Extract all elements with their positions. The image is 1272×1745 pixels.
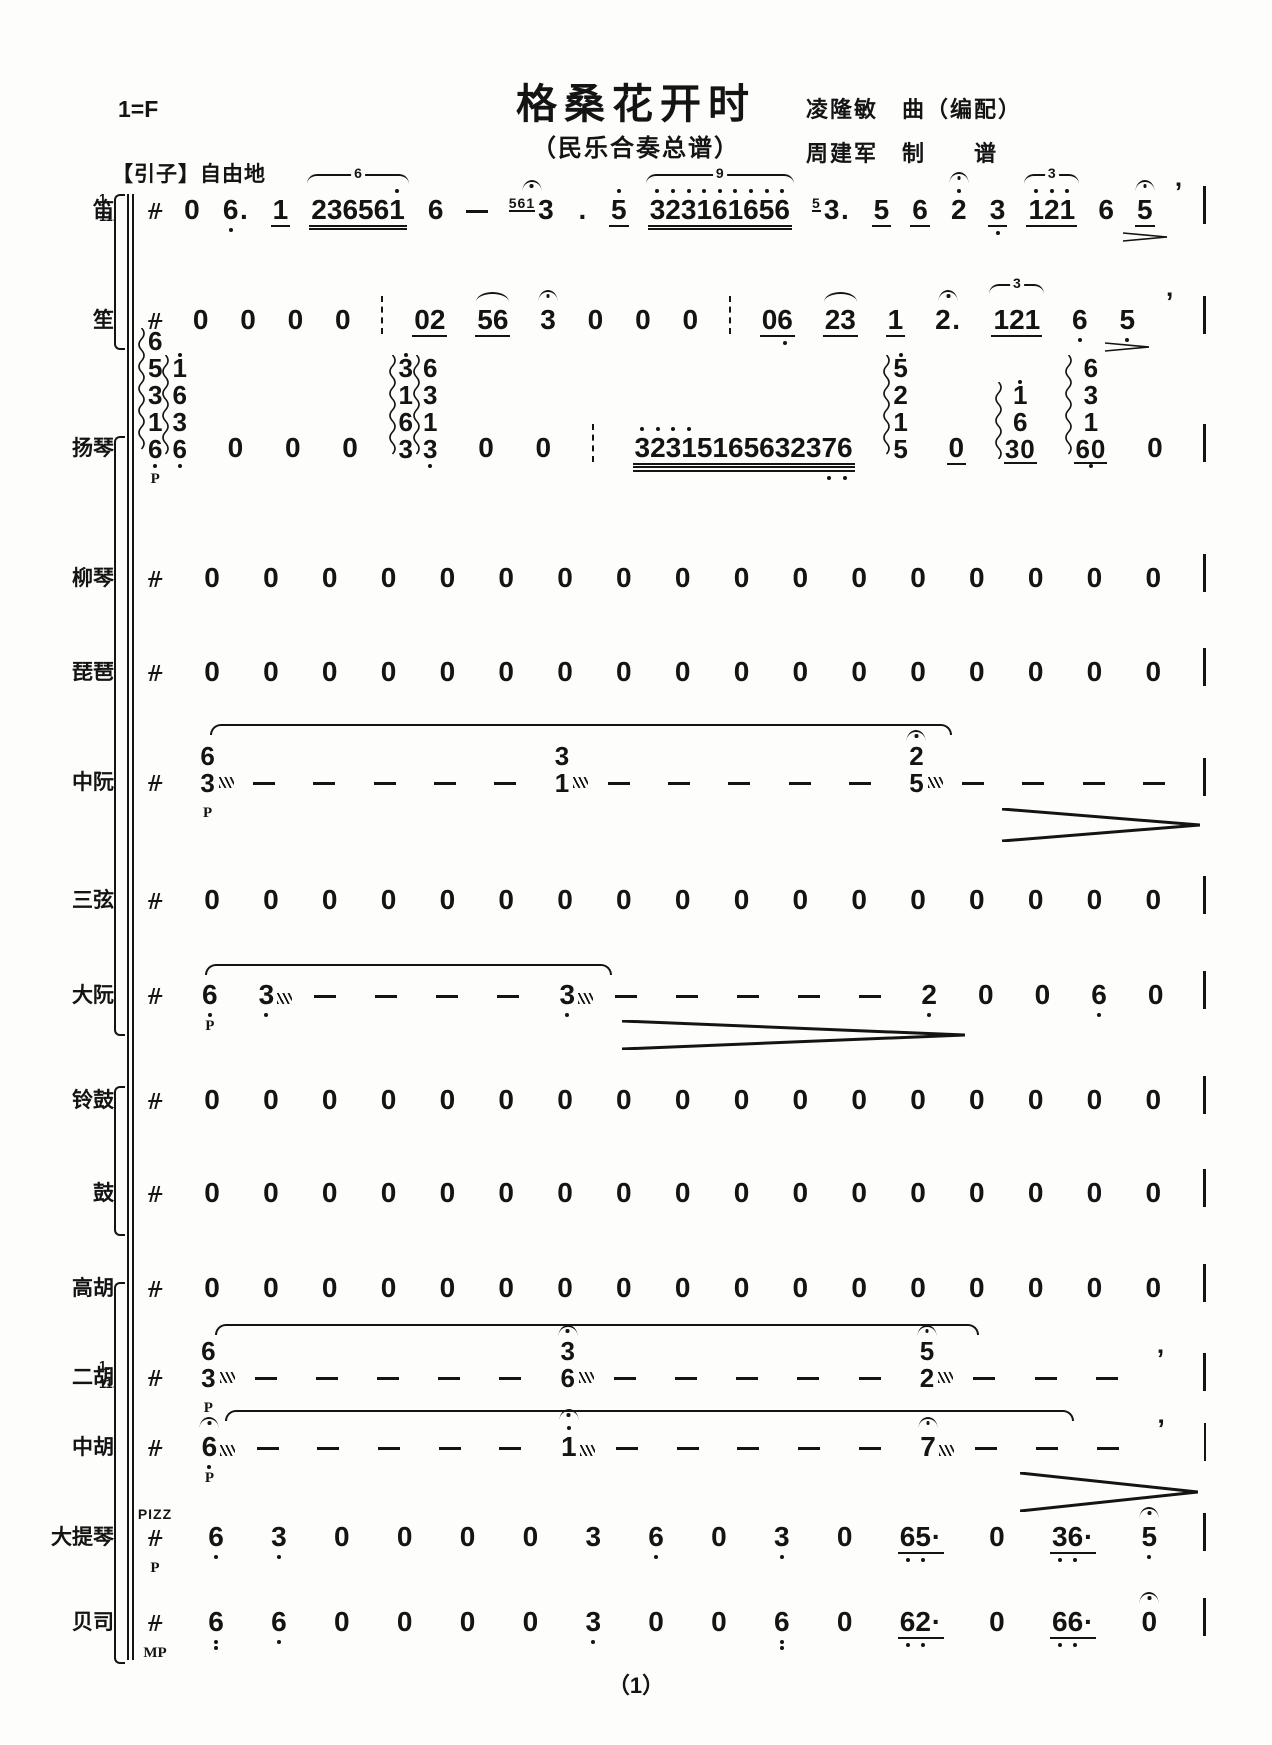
note-text: 0	[674, 1274, 692, 1302]
note-digit: 1	[399, 382, 413, 408]
chord-stack: 36	[560, 1337, 574, 1391]
note-digit: 0	[1028, 1086, 1044, 1114]
note-token: 5613	[509, 196, 555, 224]
rest-token: 0	[1086, 1274, 1104, 1302]
free-meter-symbol	[148, 988, 162, 1009]
note-text: 0	[535, 434, 553, 462]
free-meter-icon	[146, 1440, 164, 1458]
note-digit: 0	[969, 1086, 985, 1114]
chord-stack: 65316	[148, 327, 162, 462]
note-digit: 3	[1052, 1523, 1068, 1551]
page-title: 格桑花开时	[0, 70, 1272, 130]
rest-token: 0	[733, 658, 751, 686]
group-bracket-1	[114, 194, 125, 350]
rest-token: 0	[262, 1274, 280, 1302]
sustain-dash	[466, 210, 488, 225]
note-digit: 3	[172, 409, 186, 435]
note-digit: 0	[851, 1274, 867, 1302]
note-digit: 3	[585, 1523, 601, 1551]
note-digit: 6	[648, 1523, 664, 1551]
note-text: 0	[909, 1274, 927, 1302]
credit-copyist: 周建军 制 谱	[806, 136, 998, 168]
barline	[1203, 424, 1206, 462]
note-text: 6	[201, 981, 219, 1009]
note-text: 0	[380, 1086, 398, 1114]
note-body: 0	[459, 1608, 477, 1636]
note-text: 0	[203, 886, 221, 914]
note-body: 36·	[1051, 1523, 1095, 1551]
note-body: 0	[1086, 1274, 1104, 1302]
note-body: 0	[262, 886, 280, 914]
note-digit: 0	[675, 564, 691, 592]
note-body: 3	[989, 196, 1007, 224]
note-text: 65·	[899, 1523, 943, 1551]
rest-token: 0	[556, 886, 574, 914]
note-text: 62·	[899, 1608, 943, 1636]
dash-line	[797, 1377, 819, 1381]
part-number: 1.	[99, 191, 110, 206]
rest-token: 0	[1145, 1086, 1163, 1114]
note-token: 5	[1136, 196, 1154, 224]
rest-token: 0	[321, 1179, 339, 1207]
note-token: 3	[258, 981, 276, 1009]
note-digit: 0	[1146, 658, 1162, 686]
chord-note: 3	[399, 354, 413, 381]
chord-token: 6313	[423, 354, 437, 462]
dash-line	[439, 1447, 461, 1451]
note-digit: 3	[774, 1523, 790, 1551]
note-text: 32315165632376	[634, 434, 854, 462]
fermata-icon	[200, 1417, 219, 1426]
note-digit: 6	[208, 1608, 224, 1636]
note-digit: ·	[931, 1523, 942, 1551]
note-text: 0	[522, 1608, 540, 1636]
free-meter-icon	[146, 893, 164, 911]
note-digit: 2	[893, 382, 907, 408]
note-digit: 0	[793, 1179, 809, 1207]
group-bracket-2	[114, 436, 125, 1036]
sustain-dash	[438, 1377, 460, 1392]
rest-token: 0	[988, 1523, 1006, 1551]
note-token: 5	[1140, 1523, 1158, 1551]
rest-token: 0	[909, 564, 927, 592]
note-digit: ·	[931, 1608, 942, 1636]
note-digit: 0	[851, 886, 867, 914]
note-body: 0	[968, 1086, 986, 1114]
sustain-dash	[789, 782, 811, 797]
arpeggio-icon	[882, 355, 891, 464]
note-text: 0	[988, 1523, 1006, 1551]
rest-token: 0	[792, 1274, 810, 1302]
note-digit: 0	[460, 1608, 476, 1636]
rest-token: 0	[733, 886, 751, 914]
note-digit: 0	[734, 1274, 750, 1302]
note-digit: 0	[342, 434, 358, 462]
note-body: 53.	[812, 196, 851, 224]
note-body: 0	[1147, 981, 1165, 1009]
decrescendo-hairpin-3	[1020, 1472, 1198, 1517]
rest-token: 0	[556, 658, 574, 686]
note-digit: ·	[1083, 1523, 1094, 1551]
note-digit: 0	[635, 306, 651, 334]
group-bracket-4	[114, 1282, 125, 1664]
note-token: 5	[1118, 306, 1136, 334]
sustain-dash	[668, 782, 690, 797]
note-text: .	[576, 196, 589, 224]
dash-line	[499, 1377, 521, 1381]
rest-token: 0	[203, 564, 221, 592]
underline	[412, 335, 447, 337]
rest-token: 0	[733, 1274, 751, 1302]
note-digit: 0	[498, 564, 514, 592]
note-token: 6.	[222, 196, 251, 224]
free-meter-icon	[146, 775, 164, 793]
chord-pair: 31636313	[399, 354, 438, 462]
chord-token: 3163	[399, 354, 413, 462]
note-text: 0	[909, 1086, 927, 1114]
note-digit: 0	[851, 564, 867, 592]
rest-token: 0	[674, 1179, 692, 1207]
note-digit: 0	[204, 1086, 220, 1114]
note-token: .	[576, 196, 589, 224]
sustain-dash	[499, 1447, 521, 1462]
chord-stack: 25	[909, 742, 923, 796]
note-text: 0	[321, 1179, 339, 1207]
stave-label-pipa: 琵琶	[26, 656, 114, 686]
stave-daruan: 6P3320060	[148, 971, 1206, 1009]
note-digit: 0	[557, 1086, 573, 1114]
sustain-dash	[434, 782, 456, 797]
note-token: 3231616569	[649, 196, 791, 224]
note-digit: 6	[912, 196, 928, 224]
note-token: 36·	[1051, 1523, 1095, 1551]
dash-line	[616, 1447, 638, 1451]
sustain-dash	[253, 782, 275, 797]
note-text: 2.	[934, 306, 963, 334]
note-digit: 1	[148, 409, 162, 435]
rest-token: 0	[439, 658, 457, 686]
sustain-dash	[975, 1447, 997, 1462]
note-digit: 6	[1068, 1523, 1084, 1551]
underline	[475, 335, 510, 337]
note-text: 3	[270, 1523, 288, 1551]
note-digit: 3	[666, 434, 682, 462]
note-text: 0	[968, 658, 986, 686]
note-body: 0	[733, 564, 751, 592]
stave-label-yangqin: 扬琴	[26, 432, 114, 462]
note-text: 0	[733, 886, 751, 914]
chord-stack: 63	[201, 1337, 215, 1391]
barline	[1204, 1423, 1207, 1461]
dash-line	[375, 995, 397, 999]
note-text: 23	[824, 306, 857, 334]
note-text: 0	[497, 564, 515, 592]
note-token: 3	[989, 196, 1007, 224]
note-digit: 0	[460, 1523, 476, 1551]
note-text: 0	[792, 658, 810, 686]
note-body: 0	[333, 1608, 351, 1636]
credit-composer: 凌隆敏 曲（编配）	[806, 92, 1022, 124]
rest-token: 0	[183, 196, 201, 224]
rest-token: 0	[380, 564, 398, 592]
note-digit: 0	[381, 1086, 397, 1114]
note-token: 6P	[201, 1433, 219, 1461]
note-text: 236561	[310, 196, 405, 224]
sustain-dash	[798, 995, 820, 1010]
note-text: 0	[836, 1523, 854, 1551]
underline	[991, 335, 1042, 337]
note-text: 0	[459, 1523, 477, 1551]
note-token: 65·	[899, 1523, 943, 1551]
note-digit: 0	[322, 564, 338, 592]
rest-token: 0	[1086, 1179, 1104, 1207]
note-digit: 0	[978, 981, 994, 1009]
note-text: 0	[792, 886, 810, 914]
note-text: 0	[634, 306, 652, 334]
chord-note: 3	[399, 435, 413, 462]
note-digit: 0	[557, 658, 573, 686]
barline	[1203, 1353, 1206, 1391]
note-token: 6	[773, 1608, 791, 1636]
note-digit: 6	[1091, 981, 1107, 1009]
note-body: 0	[836, 1608, 854, 1636]
note-text: 0	[615, 1086, 633, 1114]
note-body: 0	[792, 1086, 810, 1114]
note-body: 0	[674, 564, 692, 592]
score-token: ’	[1157, 1430, 1165, 1461]
rest-token: 0	[587, 306, 605, 334]
note-body: 23	[824, 306, 857, 334]
note-body: 0	[968, 1274, 986, 1302]
dash-line	[675, 1377, 697, 1381]
note-digit: 5	[477, 306, 493, 334]
note-text: 0	[439, 1086, 457, 1114]
rest-token: 0	[674, 658, 692, 686]
note-text: 0	[203, 658, 221, 686]
rest-token: 0	[733, 1179, 751, 1207]
free-meter-symbol	[148, 571, 162, 592]
note-body: 0	[439, 1274, 457, 1302]
note-body: 0	[396, 1608, 414, 1636]
note-body: 0	[792, 1274, 810, 1302]
note-digit: 6	[1084, 355, 1098, 381]
rest-token: 0	[968, 1179, 986, 1207]
dash-line	[313, 782, 335, 786]
note-digit: 5	[920, 1338, 934, 1364]
note-text: 121	[1027, 196, 1076, 224]
note-text: 6	[1097, 196, 1115, 224]
note-digit: 3	[399, 355, 413, 381]
rest-token: 0	[850, 658, 868, 686]
rest-token: 0	[459, 1608, 477, 1636]
note-body: 0	[439, 1086, 457, 1114]
note-digit: 3	[540, 306, 556, 334]
free-meter-symbol	[148, 1093, 162, 1114]
free-meter-symbol	[148, 893, 162, 914]
note-text: 0	[988, 1608, 1006, 1636]
rest-token: 0	[333, 1608, 351, 1636]
sustain-dash	[317, 1447, 339, 1462]
chord-note: 60	[1075, 435, 1106, 462]
note-body: 3	[584, 1523, 602, 1551]
note-text: 0	[792, 1086, 810, 1114]
rest-token: 0	[1027, 564, 1045, 592]
note-body: 0	[321, 1086, 339, 1114]
note-digit: 0	[193, 306, 209, 334]
underline	[760, 335, 795, 337]
note-text: 0	[615, 564, 633, 592]
note-body: 0	[262, 1086, 280, 1114]
rest-token: 0	[674, 886, 692, 914]
note-text: 121	[992, 306, 1041, 334]
note-text: 0	[850, 1274, 868, 1302]
dash-line	[436, 995, 458, 999]
rest-token: 0	[850, 1274, 868, 1302]
note-body: 0	[203, 1179, 221, 1207]
dash-line	[499, 1447, 521, 1451]
barline	[1203, 758, 1206, 796]
note-digit: 0	[322, 1086, 338, 1114]
note-text: 0	[1086, 1086, 1104, 1114]
sustain-dash	[313, 782, 335, 797]
note-text: 5	[873, 196, 891, 224]
note-text: 0	[850, 1179, 868, 1207]
note-digit: 0	[184, 196, 200, 224]
barline	[1203, 296, 1206, 334]
note-text: 0	[333, 1608, 351, 1636]
note-body: 0	[396, 1523, 414, 1551]
note-body: 0	[1027, 1086, 1045, 1114]
note-digit: 0	[557, 1179, 573, 1207]
note-body: 0	[710, 1608, 728, 1636]
barline	[1203, 971, 1206, 1009]
underline	[886, 335, 906, 337]
note-text: 0	[674, 564, 692, 592]
chord-note: 1	[555, 769, 569, 796]
free-meter-icon	[146, 203, 164, 221]
free-meter-symbol	[148, 1370, 162, 1391]
note-text: 0	[262, 564, 280, 592]
note-text: 0	[227, 434, 245, 462]
note-digit: 5	[148, 355, 162, 381]
technique-mark: PIZZ	[138, 1506, 172, 1522]
chord-token: 63P	[200, 742, 214, 796]
note-body: 0	[615, 886, 633, 914]
sustain-dash	[314, 995, 336, 1010]
dash-line	[677, 1447, 699, 1451]
underline	[898, 1637, 944, 1639]
rest-token: 0	[792, 1179, 810, 1207]
arpeggio-icon	[161, 355, 170, 464]
note-token: 2	[920, 981, 938, 1009]
note-body: 0	[792, 886, 810, 914]
chord-note: 6	[399, 408, 413, 435]
note-body: 0	[647, 1608, 665, 1636]
note-text: 0	[396, 1523, 414, 1551]
tuplet-bracket: 6	[307, 174, 408, 186]
sustain-dash	[497, 995, 519, 1010]
note-text: 6	[1090, 981, 1108, 1009]
chord-stack: 52	[920, 1337, 934, 1391]
note-token: 3	[584, 1608, 602, 1636]
note-digit: 3	[1084, 382, 1098, 408]
note-digit: 6	[1072, 306, 1088, 334]
rest-token: 0	[556, 1086, 574, 1114]
stave-sheng: 000002563000062312.121365’	[148, 296, 1206, 334]
chord-note: 6	[148, 327, 162, 354]
note-text: 0	[380, 1274, 398, 1302]
chord-note: 3	[560, 1337, 574, 1364]
note-body: 0	[681, 306, 699, 334]
tremolo-icon	[277, 993, 292, 1004]
note-digit: 0	[1146, 564, 1162, 592]
note-body: 0	[674, 886, 692, 914]
note-text: 0	[1145, 1179, 1163, 1207]
note-text: 0	[439, 564, 457, 592]
note-body: 0	[792, 1179, 810, 1207]
note-body: 0	[556, 886, 574, 914]
sustain-dash	[494, 782, 516, 797]
sustain-dash	[436, 995, 458, 1010]
note-digit: 3	[423, 436, 437, 462]
note-text: 323161656	[649, 196, 791, 224]
note-digit: 0	[440, 564, 456, 592]
note-text: 3	[773, 1523, 791, 1551]
stave-label-beisi: 贝司	[26, 1606, 114, 1636]
note-digit: 3	[585, 1608, 601, 1636]
note-digit: 5	[1119, 306, 1135, 334]
note-body: 0	[1145, 1086, 1163, 1114]
note-digit: 1	[1060, 196, 1076, 224]
note-digit: 6	[1052, 1608, 1068, 1636]
rest-token: 0	[615, 886, 633, 914]
rest-token: 0	[556, 564, 574, 592]
note-body: 6	[647, 1523, 665, 1551]
note-body: 0	[968, 564, 986, 592]
note-digit: 2	[825, 306, 841, 334]
note-body: 0	[497, 564, 515, 592]
note-text: 0	[1145, 1086, 1163, 1114]
sustain-dash	[316, 1377, 338, 1392]
note-digit: 0	[969, 658, 985, 686]
rest-token: 0	[1145, 1179, 1163, 1207]
note-digit: 0	[204, 658, 220, 686]
free-meter-symbol	[148, 665, 162, 686]
stave-gu: 00000000000000000	[148, 1169, 1206, 1207]
note-digit: 6	[560, 1365, 574, 1391]
dash-line	[676, 995, 698, 999]
note-token: 53.	[812, 196, 851, 224]
note-digit: 0	[969, 1179, 985, 1207]
note-text: 0	[1027, 1179, 1045, 1207]
note-digit: 0	[498, 1274, 514, 1302]
note-digit: 0	[204, 886, 220, 914]
note-text: 0	[459, 1608, 477, 1636]
note-digit: 0	[322, 1274, 338, 1302]
rest-token: 0	[522, 1523, 540, 1551]
note-body: 65·	[899, 1523, 943, 1551]
note-text: 0	[1145, 1274, 1163, 1302]
dash-line	[614, 1377, 636, 1381]
score-page: 1=F 格桑花开时 （民乐合奏总谱） 凌隆敏 曲（编配） 周建军 制 谱 【引子…	[0, 0, 1272, 1745]
tuplet-bracket: 3	[989, 284, 1044, 296]
note-digit: 0	[523, 1523, 539, 1551]
note-digit: 3	[399, 436, 413, 462]
rest-token: 0	[203, 886, 221, 914]
note-body: 0	[1145, 1179, 1163, 1207]
dynamic-mark: P	[203, 805, 212, 822]
note-digit: 0	[1146, 1086, 1162, 1114]
